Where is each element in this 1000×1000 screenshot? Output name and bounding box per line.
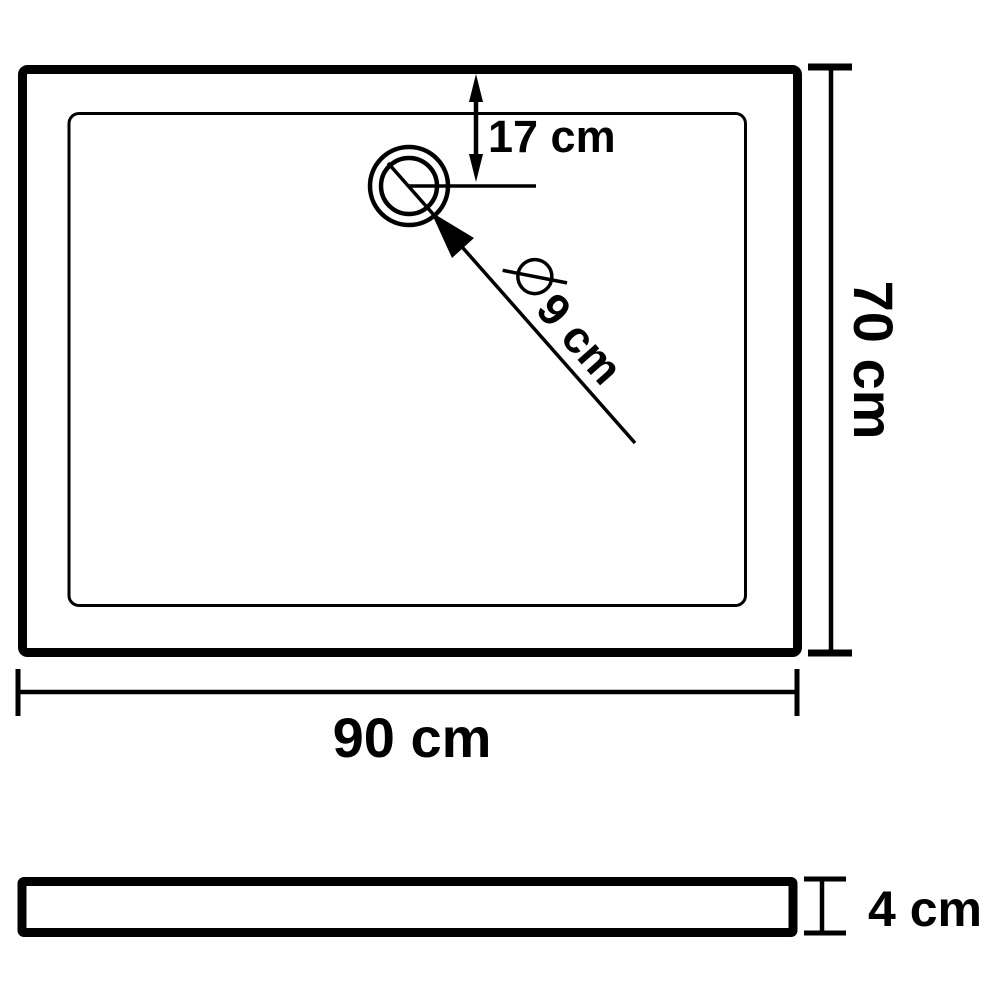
tray-profile [22, 882, 793, 933]
depth-label: 70 cm [842, 281, 905, 440]
drain-offset-label: 17 cm [488, 111, 616, 162]
height-dimension: 4 cm [804, 879, 982, 937]
top-view [23, 70, 798, 653]
depth-dimension: 70 cm [808, 67, 905, 653]
width-label: 90 cm [333, 706, 492, 769]
height-label: 4 cm [868, 881, 982, 937]
side-view [22, 882, 793, 933]
shower-tray-dimension-diagram: 17 cm 9 cm 70 cm 90 cm 4 cm [0, 0, 1000, 1000]
width-dimension: 90 cm [18, 669, 797, 769]
